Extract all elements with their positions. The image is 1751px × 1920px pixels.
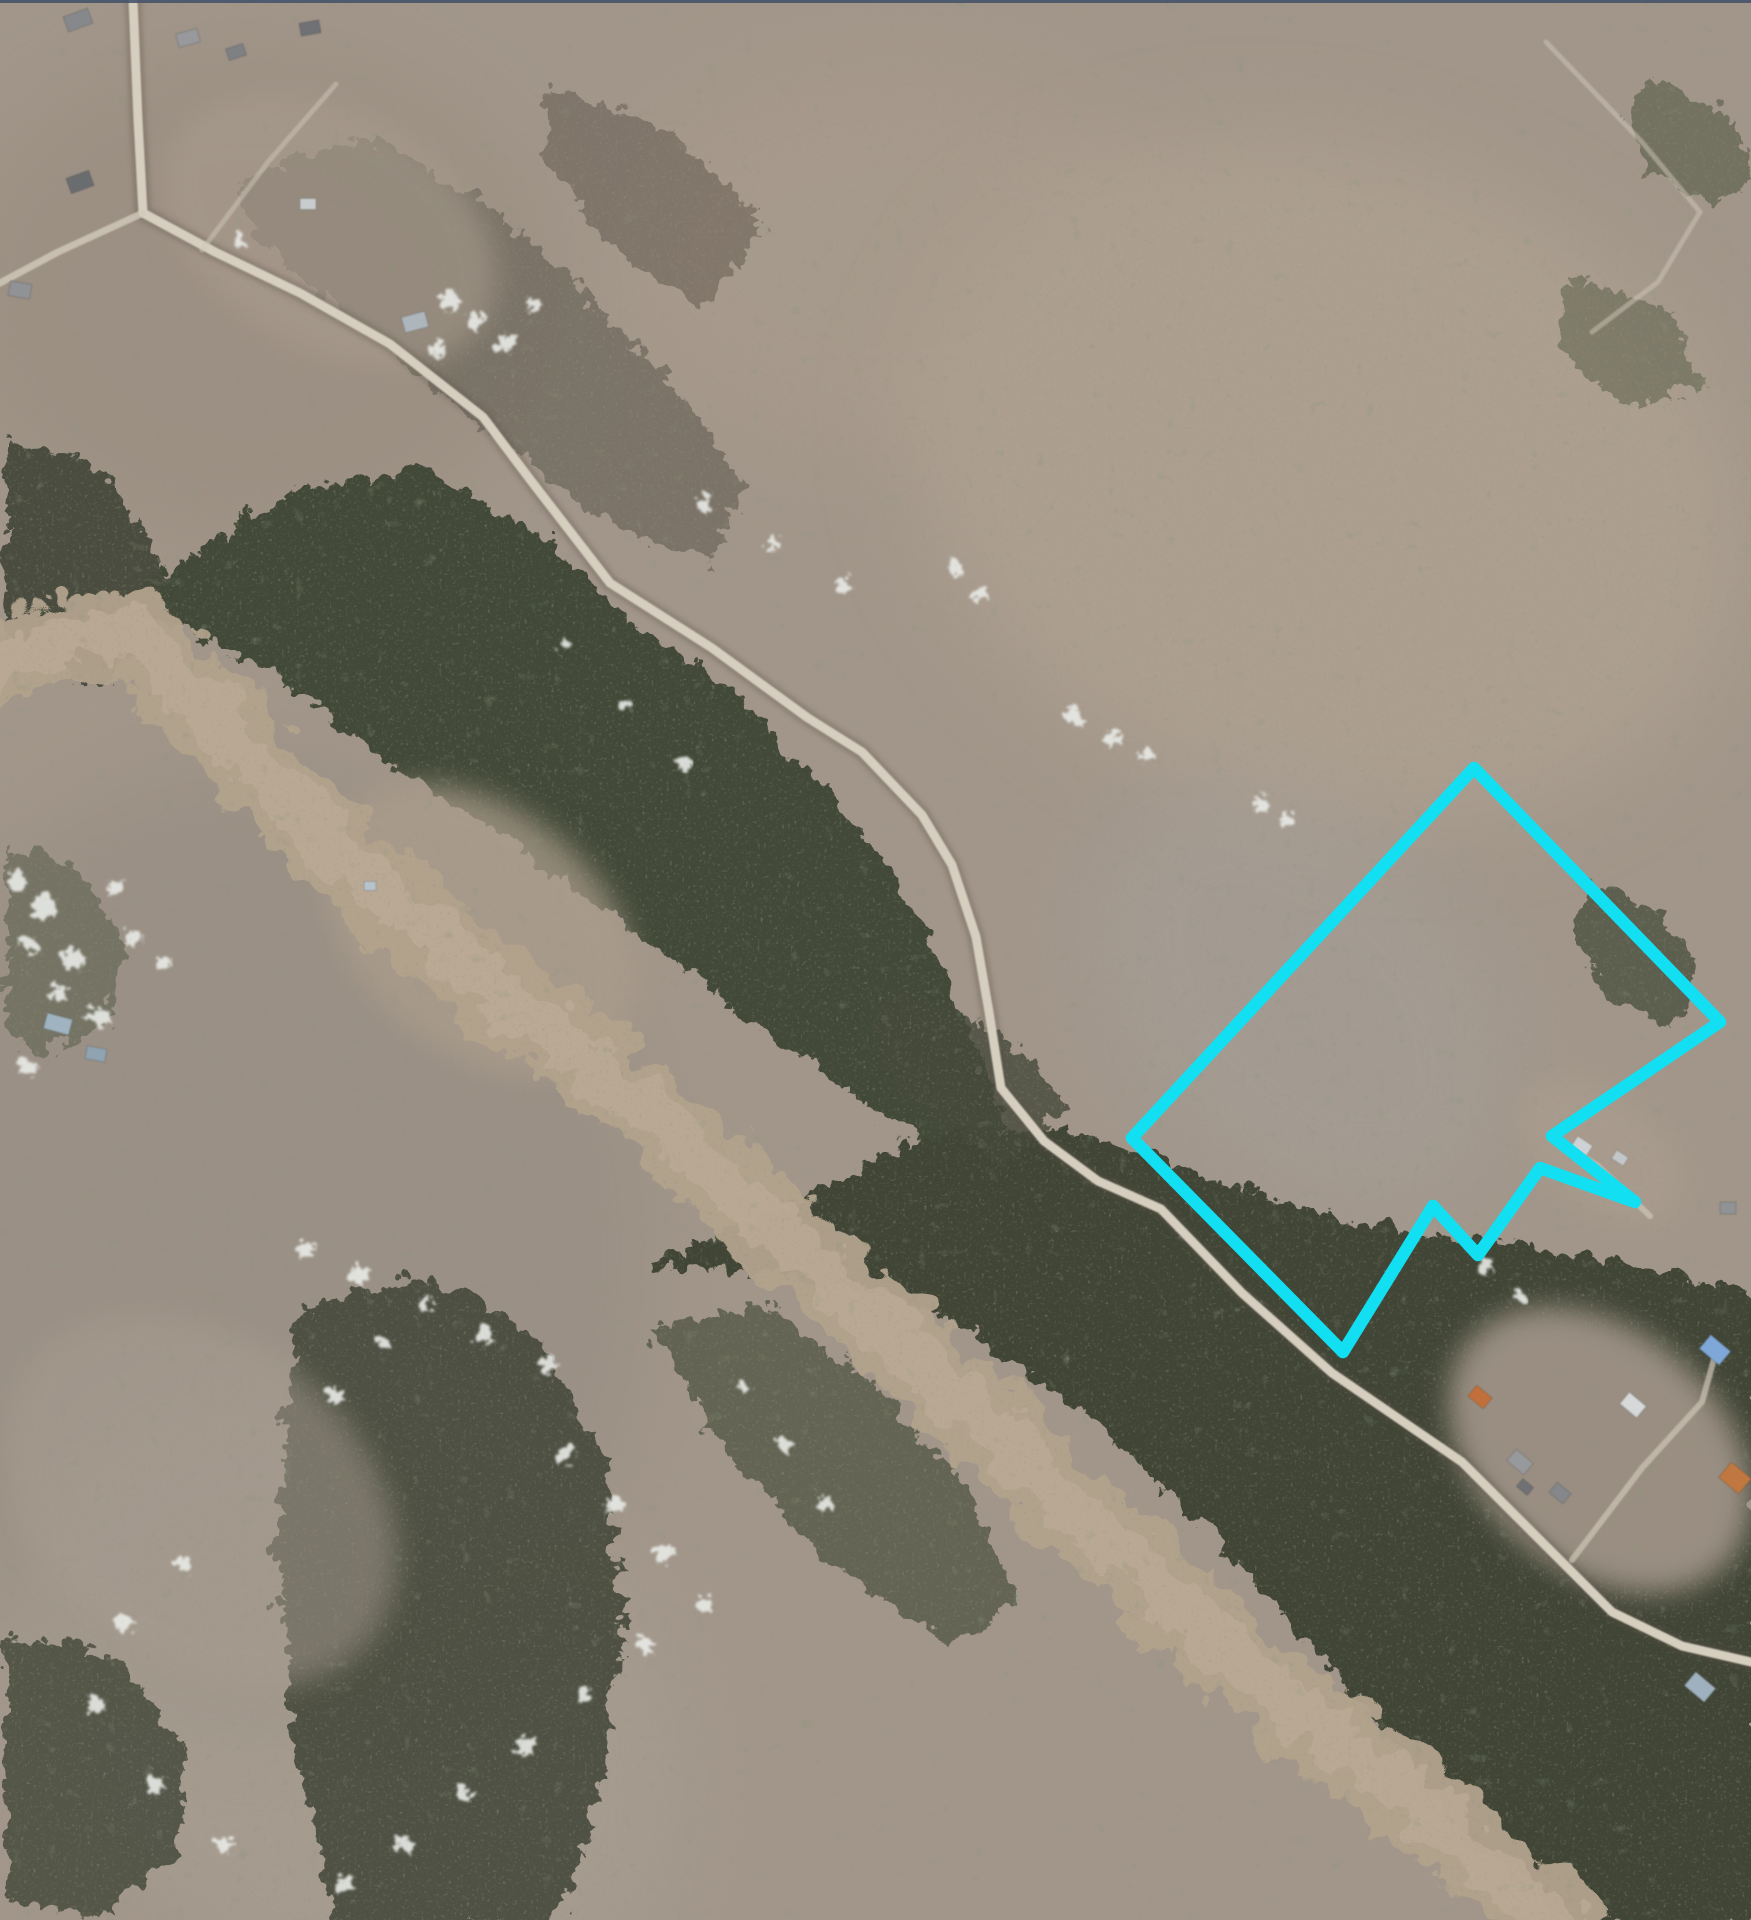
snow-patch <box>813 1493 827 1507</box>
snow-patch <box>554 634 566 646</box>
snow-patch <box>86 1002 106 1022</box>
snow-patch <box>391 1831 409 1849</box>
snow-patch <box>572 1682 588 1698</box>
map-viewport[interactable] <box>0 0 1751 1920</box>
building-rooftop <box>85 1046 107 1062</box>
snow-patch <box>17 931 35 949</box>
snow-patch <box>228 231 242 245</box>
snow-patch <box>322 1382 338 1398</box>
snow-patch <box>425 339 439 353</box>
snow-patch <box>151 953 165 967</box>
imagery-texture-layer <box>0 0 1751 1920</box>
snow-patch <box>537 1352 553 1368</box>
speckle-light-texture <box>0 0 1751 1920</box>
snow-patch <box>674 754 686 766</box>
snow-patch <box>651 1541 669 1559</box>
snow-patch <box>631 1631 649 1649</box>
snow-patch <box>332 1872 348 1888</box>
top-edge-artifact <box>0 0 1751 3</box>
building-rooftop <box>299 20 321 36</box>
snow-patch <box>1247 792 1263 808</box>
building-rooftop <box>364 882 376 891</box>
snow-patch <box>82 1692 98 1708</box>
snow-patch <box>692 1592 708 1608</box>
snow-patch <box>111 1611 129 1629</box>
snow-patch <box>212 1832 228 1848</box>
snow-patch <box>57 944 79 966</box>
snow-patch <box>464 310 480 326</box>
snow-patch <box>1135 745 1149 759</box>
snow-patch <box>1275 809 1289 823</box>
snow-patch <box>47 980 63 996</box>
snow-patch <box>1509 1286 1521 1298</box>
building-rooftop <box>300 199 316 210</box>
snow-patch <box>2 868 22 888</box>
snow-patch <box>291 1236 309 1254</box>
snow-patch <box>764 534 776 546</box>
snow-patch <box>511 1731 529 1749</box>
snow-patch <box>172 1552 188 1568</box>
snow-patch <box>13 1053 31 1071</box>
snow-patch <box>120 924 136 940</box>
snow-patch <box>614 694 626 706</box>
snow-patch <box>942 557 958 573</box>
snow-patch <box>1100 725 1116 741</box>
snow-patch <box>551 1441 569 1459</box>
snow-patch <box>1061 703 1079 721</box>
snow-patch <box>452 1782 468 1798</box>
snow-patch <box>373 1333 387 1347</box>
snow-patch <box>521 293 535 307</box>
aerial-imagery-canvas[interactable] <box>0 0 1751 1920</box>
snow-patch <box>968 583 982 597</box>
snow-patch <box>102 874 118 890</box>
building-rooftop <box>1720 1202 1736 1214</box>
snow-patch <box>693 493 707 507</box>
snow-patch <box>772 1432 788 1448</box>
snow-patch <box>345 1260 365 1280</box>
snow-patch <box>833 573 847 587</box>
snow-patch <box>733 1373 747 1387</box>
snow-patch <box>28 890 52 914</box>
snow-patch <box>435 286 455 306</box>
snow-patch <box>602 1492 618 1508</box>
imagery-edge-artifact <box>0 0 1751 3</box>
snow-patch <box>412 1292 428 1308</box>
snow-patch <box>471 1321 489 1339</box>
snow-patch <box>141 1771 159 1789</box>
building-rooftop <box>8 281 32 300</box>
snow-patch <box>493 329 511 347</box>
